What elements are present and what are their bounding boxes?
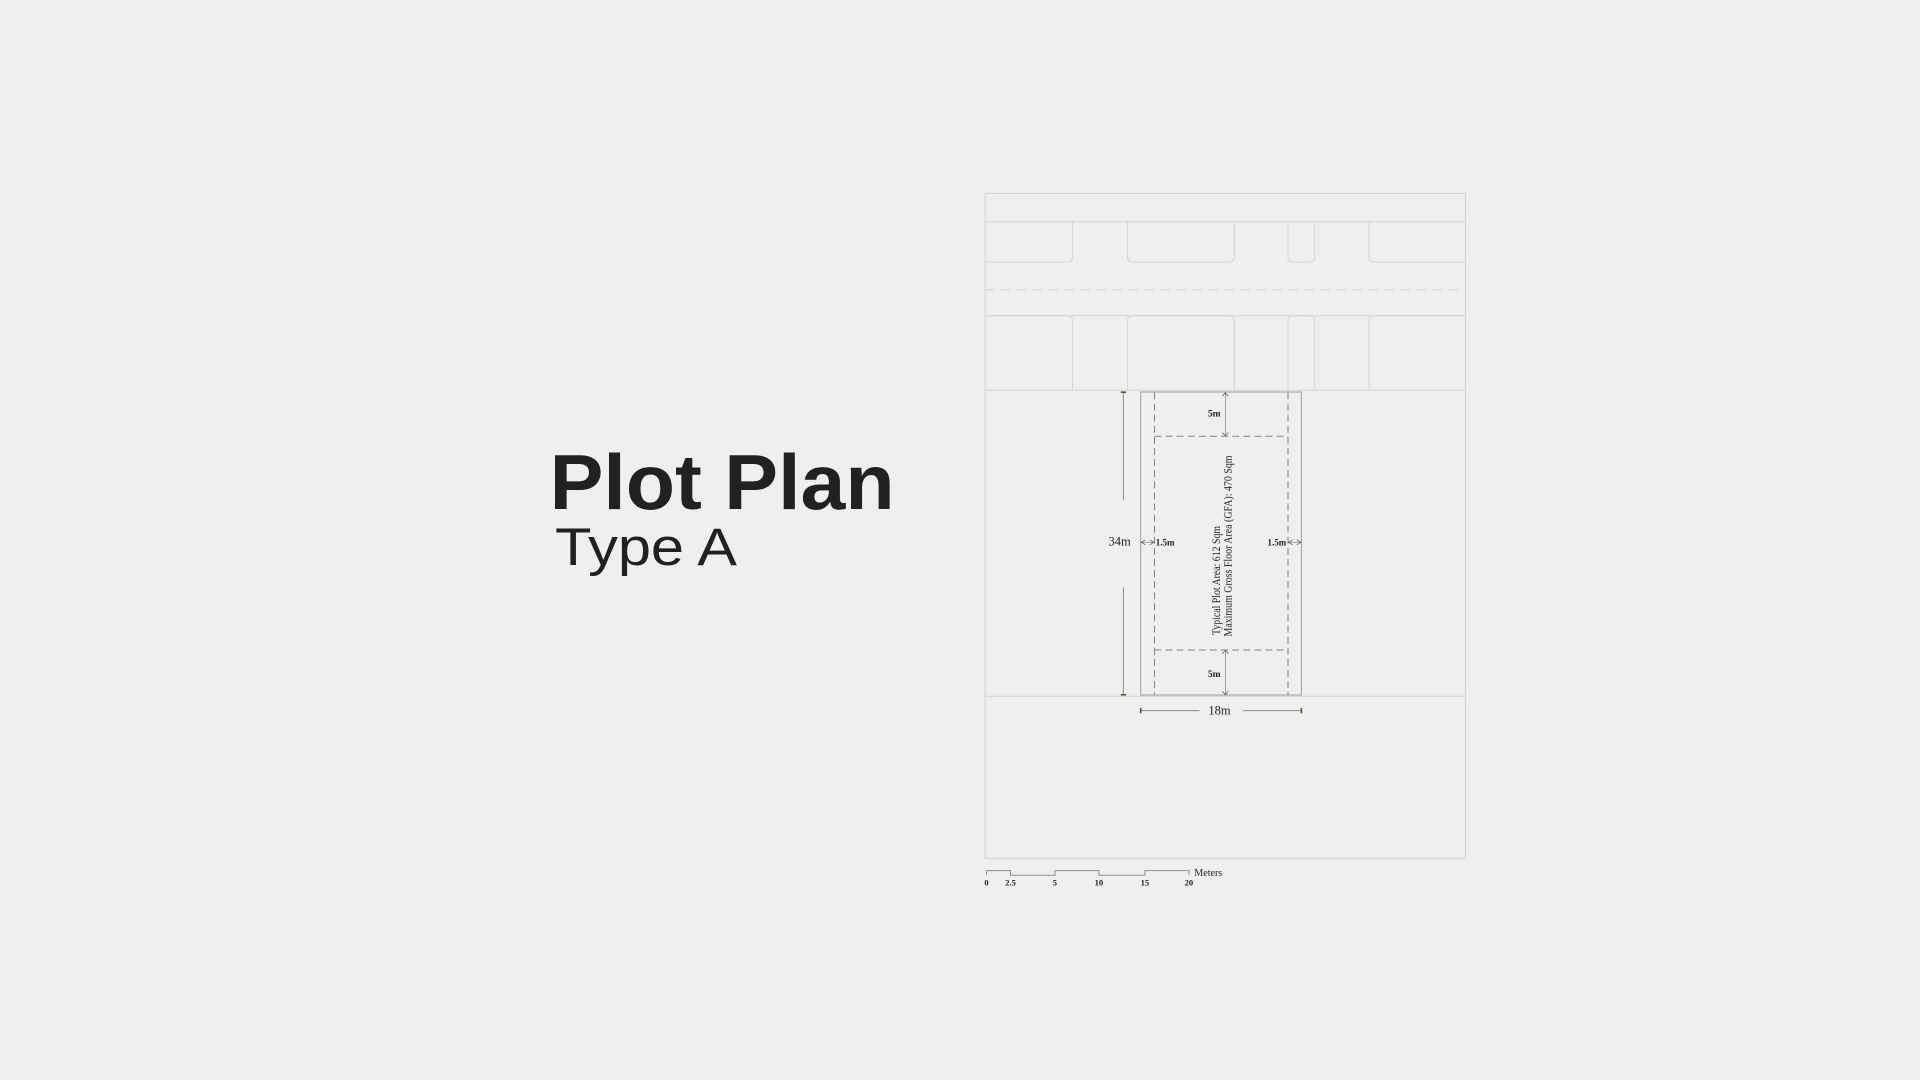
svg-text:Plot Plan: Plot Plan <box>550 438 895 526</box>
svg-text:2.5: 2.5 <box>1005 878 1016 888</box>
svg-text:Type A: Type A <box>555 518 738 577</box>
svg-text:5m: 5m <box>1208 670 1221 680</box>
svg-text:20: 20 <box>1185 878 1194 888</box>
svg-text:Typical Plot Area: 612 Sqm: Typical Plot Area: 612 Sqm <box>1211 526 1223 635</box>
svg-text:5: 5 <box>1053 878 1057 888</box>
svg-text:1.5m: 1.5m <box>1268 538 1287 548</box>
svg-text:15: 15 <box>1141 878 1150 888</box>
svg-text:Meters: Meters <box>1194 868 1222 879</box>
svg-text:5m: 5m <box>1208 409 1221 419</box>
svg-text:10: 10 <box>1095 878 1104 888</box>
svg-text:0: 0 <box>984 878 988 888</box>
svg-text:18m: 18m <box>1208 704 1231 718</box>
svg-text:1.5m: 1.5m <box>1156 538 1175 548</box>
svg-text:Maximum Gross Floor Area (GFA): Maximum Gross Floor Area (GFA): 470 Sqm <box>1223 455 1235 636</box>
svg-text:34m: 34m <box>1108 535 1131 549</box>
